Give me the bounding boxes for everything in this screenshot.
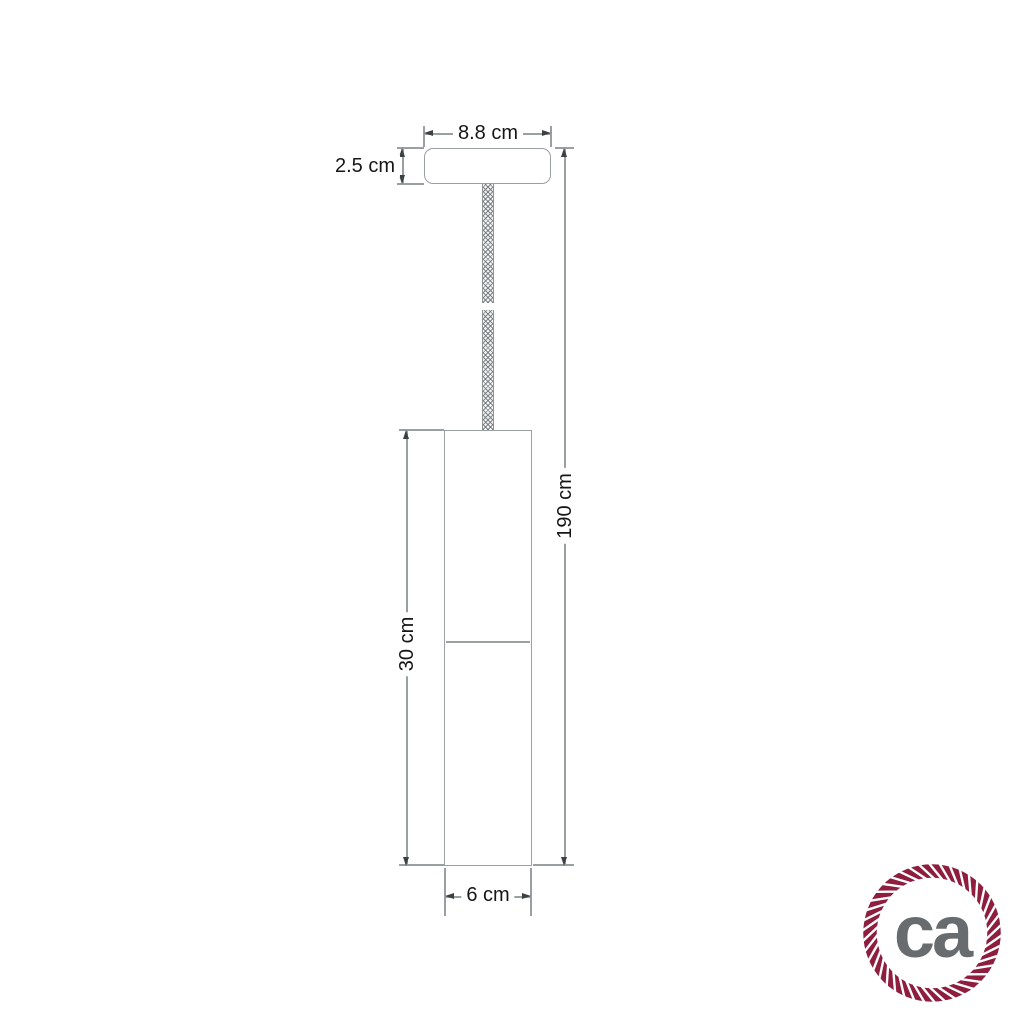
dim-arrow-right-icon [542,130,551,136]
dim-arrow-left-icon [424,130,433,136]
dim-arrow-up-icon [561,148,567,157]
lamp-cylinder-outline [444,430,532,866]
textile-cable-upper [482,184,494,303]
dim-label-shade-diameter: 6 cm [461,884,514,906]
pendant-lamp-dimension-drawing: 8.8 cm 2.5 cm 190 cm 30 cm 6 cm ca [0,0,1024,1024]
dim-arrow-down-icon [561,857,567,866]
dim-label-canopy-width: 8.8 cm [453,122,523,144]
creative-cables-logo: ca [857,858,1007,1008]
extension-line [530,868,532,916]
cylinder-divider-line [446,641,530,643]
dim-label-shade-height: 30 cm [396,612,418,676]
textile-cable-lower [482,310,494,430]
dim-arrow-left-icon [445,893,454,899]
dim-arrow-right-icon [522,893,531,899]
extension-line [444,868,446,916]
dim-label-canopy-height: 2.5 cm [330,155,400,177]
ceiling-rose-outline [424,148,551,184]
logo-text: ca [857,858,1007,1008]
dim-arrow-down-icon [403,857,409,866]
extension-line [533,864,574,866]
dim-label-total-drop: 190 cm [554,468,576,544]
dim-arrow-up-icon [403,430,409,439]
